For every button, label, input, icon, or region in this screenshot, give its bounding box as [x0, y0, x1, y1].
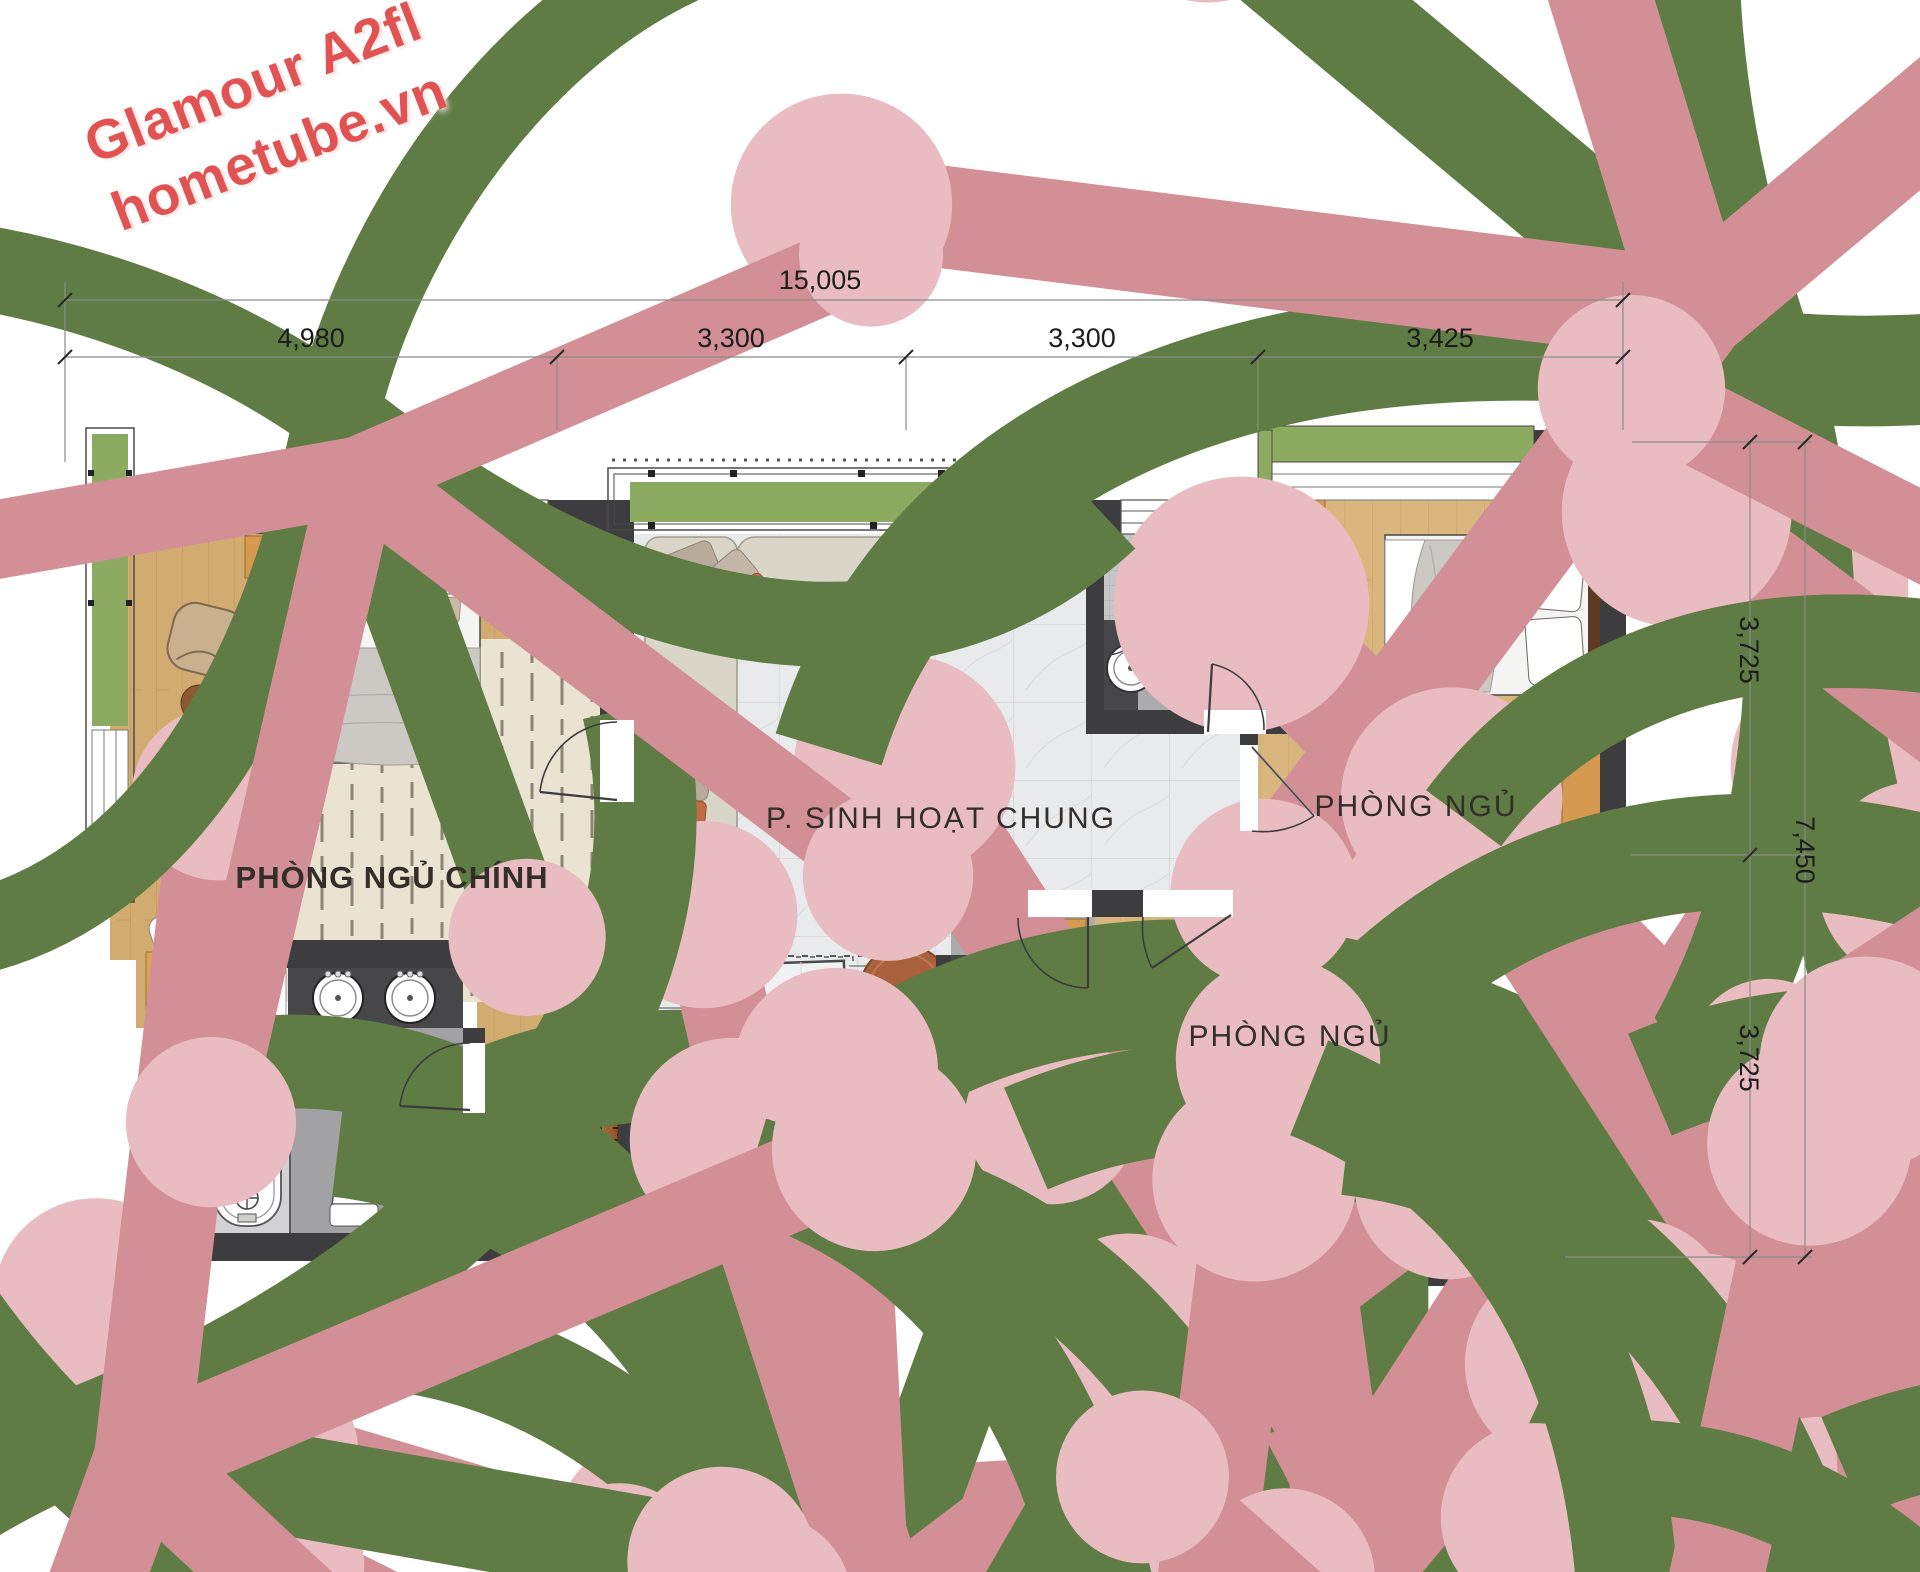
- label-bedroom-2: PHÒNG NGỦ: [1314, 789, 1517, 823]
- dim-right-seg-2: 3,725: [1734, 1024, 1764, 1092]
- dim-seg-2: 3,300: [697, 323, 765, 353]
- planters: [0, 0, 1920, 1572]
- floorplan-drawing: 15,005 4,980 3,300 3,300 3,425 3,725 3,7…: [0, 0, 1920, 1572]
- dim-seg-3: 3,300: [1048, 323, 1116, 353]
- dim-right-total: 7,450: [1790, 816, 1820, 884]
- label-bedroom-3: PHÒNG NGỦ: [1188, 1019, 1391, 1053]
- floorplan-page: { "watermark": { "line1": "Glamour A2fl"…: [0, 0, 1920, 1572]
- dim-top-total: 15,005: [779, 265, 862, 295]
- dim-seg-1: 4,980: [277, 323, 345, 353]
- label-living-common: P. SINH HOẠT CHUNG: [766, 802, 1116, 835]
- dim-seg-4: 3,425: [1406, 323, 1474, 353]
- dim-right-seg-1: 3,725: [1734, 616, 1764, 684]
- label-master-bedroom: PHÒNG NGỦ CHÍNH: [236, 859, 549, 895]
